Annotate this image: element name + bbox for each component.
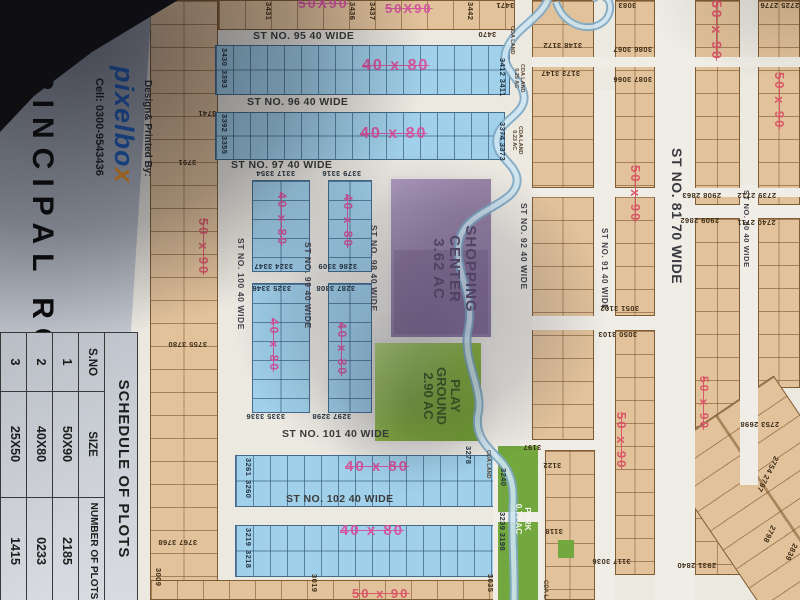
size-5090-r2: 50 x 90 [772,72,786,129]
plot-number: 3791 [178,158,196,166]
plot-number: 3117 3036 [592,557,631,565]
plot-number: 3087 3066 [613,75,652,83]
size-5090-r4: 50 x 90 [614,412,628,469]
cda-023-line1: CDA LAND [516,126,522,155]
schedule-cell-size: 50X90 [60,391,73,497]
schedule-cell-size: 25X50 [8,391,21,497]
schedule-header-row: S.NO SIZE NUMBER OF PLOTS [79,333,105,600]
street-91-label: ST NO. 91 40 WIDE [600,228,608,310]
size-5090-leftcol: 50 x 90 [196,218,210,275]
cda-land-top-label: CDA LAND [508,26,514,55]
plot-number: 3286 3309 [318,262,357,270]
plot-number: 2739 2712 [737,191,776,199]
plot-number: 3173 3147 [541,69,580,77]
schedule-col-number: NUMBER OF PLOTS [88,497,99,600]
schedule-row: 3 25X50 1415 [1,333,27,600]
size-4080-blockC2: 40 x 80 [335,322,348,376]
schedule-cell-count: 0233 [34,497,47,600]
park-label: PARK 0.77 AC [514,488,532,550]
publisher-block: Design& Printed By: pixelbox Cell: 0300-… [64,50,152,250]
plot-number: 3118 [545,527,563,535]
size-5090-top: 50X90 [385,2,433,16]
shopping-line3: 3.62 AC [431,203,447,335]
schedule-col-sno: S.NO [86,333,98,391]
schedule-row: 2 40X80 0233 [27,333,53,600]
cda-land-023-label: CDA LAND 0.23 AC [510,126,522,155]
size-5090-bottom: 50 x 90 [352,587,409,600]
plot-number: 3430 [220,48,228,66]
brand-main: pixelbo [109,66,139,168]
schedule-title: SCHEDULE OF PLOTS [115,333,131,600]
shopping-line1: SHOPPING [462,203,478,335]
map-photo: ST NO. 95 40 WIDE ST NO. 96 40 WIDE ST N… [0,0,800,600]
street-100-label: ST NO. 100 40 WIDE [236,238,245,330]
schedule-cell-sno: 1 [60,333,73,391]
plot-number: 2908 2863 [682,191,721,199]
publisher-phone: Cell: 0300-9543436 [92,78,104,176]
plot-number: 3148 3172 [543,41,582,49]
size-5090-r1: 50 x 90 [709,0,724,61]
plot-number: 3392 [220,114,228,132]
schedule-cell-count: 1415 [8,497,21,600]
plot-number: 2753 2698 [740,420,779,428]
street-98-label: ST NO. 98 40 WIDE [369,225,378,312]
plot-number: 3260 [244,480,252,498]
street-80-label: ST NO. 80 40 WIDE [742,190,750,268]
size-4080-blockA1: 40 x 80 [275,192,288,246]
plot-number: 3325 3346 [252,284,291,292]
plot-number: 3197 [523,443,541,451]
playground-line3: 2.90 AC [421,350,435,442]
playground-line1: PLAY [448,350,462,442]
plot-number: 3239 3198 [498,512,506,551]
shopping-center-label: SHOPPING CENTER 3.62 AC [431,203,478,335]
plot-number: 2931 2840 [677,561,716,569]
plot-number: 3471 [496,1,514,9]
plot-number: 3442 [466,2,474,20]
size-5090-r5: 50 x 90 [697,376,710,430]
plot-number: 3436 [348,2,356,20]
publisher-prefix: Design& Printed By: [142,80,153,177]
cda-029-line2: 0.29 AC [512,64,518,93]
plot-number: 3412 3411 [498,58,506,97]
plot-number: 3287 3308 [316,284,355,292]
schedule-cell-sno: 3 [8,333,21,391]
cda-land-101-label: CDA LAND [484,450,490,479]
plot-number: 2740 2711 [737,218,776,226]
plot-number: 3009 [154,568,162,586]
plot-number: 3741 [198,109,216,117]
plot-number: 3051 3102 [600,304,639,312]
plot-number: 3297 3298 [312,412,351,420]
plot-number: 3083 [618,1,636,9]
plot-number: 3437 [368,2,376,20]
plot-number: 3767 3768 [158,538,197,546]
schedule-row: 1 50X90 2185 [53,333,79,600]
schedule-col-size: SIZE [86,391,98,497]
schedule-cell-sno: 2 [34,333,47,391]
schedule-divider [0,391,105,392]
plot-number: 3086 3067 [613,45,652,53]
publisher-brand: pixelbox [110,66,138,184]
plot-number: 3374 3373 [498,122,506,161]
plot-number: 3379 3316 [322,169,361,177]
plot-number: 3278 [464,446,472,464]
size-4080-strip102: 40 x 80 [340,523,404,539]
playground-line2: GROUND [435,350,449,442]
cda-023-line2: 0.23 AC [510,126,516,155]
plot-number: 3335 3336 [246,412,285,420]
plot-number: 3324 3347 [254,262,293,270]
size-4080-strip96: 40 x 80 [360,126,427,143]
park-line1: PARK [523,488,532,550]
street-92-label: ST NO. 92 40 WIDE [519,203,528,290]
size-4080-strip95: 40 x 80 [362,58,429,75]
size-4080-strip101: 40 x 80 [345,459,409,475]
park-line2: 0.77 AC [514,488,523,550]
plot-number: 3218 [244,550,252,568]
street-101-label: ST NO. 101 40 WIDE [282,429,390,440]
brand-accent: x [109,168,139,184]
shopping-line2: CENTER [447,203,463,335]
street-102-label: ST NO. 102 40 WIDE [286,494,394,505]
plot-number: 3240 [499,468,507,486]
schedule-cell-size: 40X80 [34,391,47,497]
plot-number: 3019 [310,574,318,592]
plot-number: 2725 2776 [760,1,799,9]
playground-label: PLAY GROUND 2.90 AC [421,350,462,442]
street-99-label: ST NO. 99 40 WIDE [303,242,312,329]
schedule-cell-count: 2185 [60,497,73,600]
plot-number: 3122 [543,461,561,469]
plot-number: 3050 3103 [598,330,637,338]
plot-number: 3261 [244,458,252,476]
cda-029-line1: CDA LAND [518,64,524,93]
schedule-table: SCHEDULE OF PLOTS S.NO SIZE NUMBER OF PL… [0,332,138,600]
street-95-label: ST NO. 95 40 WIDE [253,31,354,42]
street-96-label: ST NO. 96 40 WIDE [247,97,348,108]
plot-number: 3470 [478,30,496,38]
schedule-divider [0,497,105,498]
plot-number: 3317 3354 [256,169,295,177]
plot-number: 2909 2862 [680,216,719,224]
plot-number: 3755 3780 [168,340,207,348]
size-4080-blockC1: 40 x 80 [341,194,354,248]
plot-number: 3393 [220,70,228,88]
size-4080-blockA2: 40 x 80 [267,318,280,372]
cda-land-bottom-label: CDA LAND [542,580,548,600]
plot-number: 3431 [264,2,272,20]
plot-number: 3219 [244,528,252,546]
cda-land-029-label: CDA LAND 0.29 AC [512,64,524,93]
size-5090-top-left: 50X90 [298,0,348,11]
plot-number: 3035 [486,574,494,592]
size-5090-r3: 50 x 90 [628,165,642,222]
plot-number: 3355 [220,136,228,154]
